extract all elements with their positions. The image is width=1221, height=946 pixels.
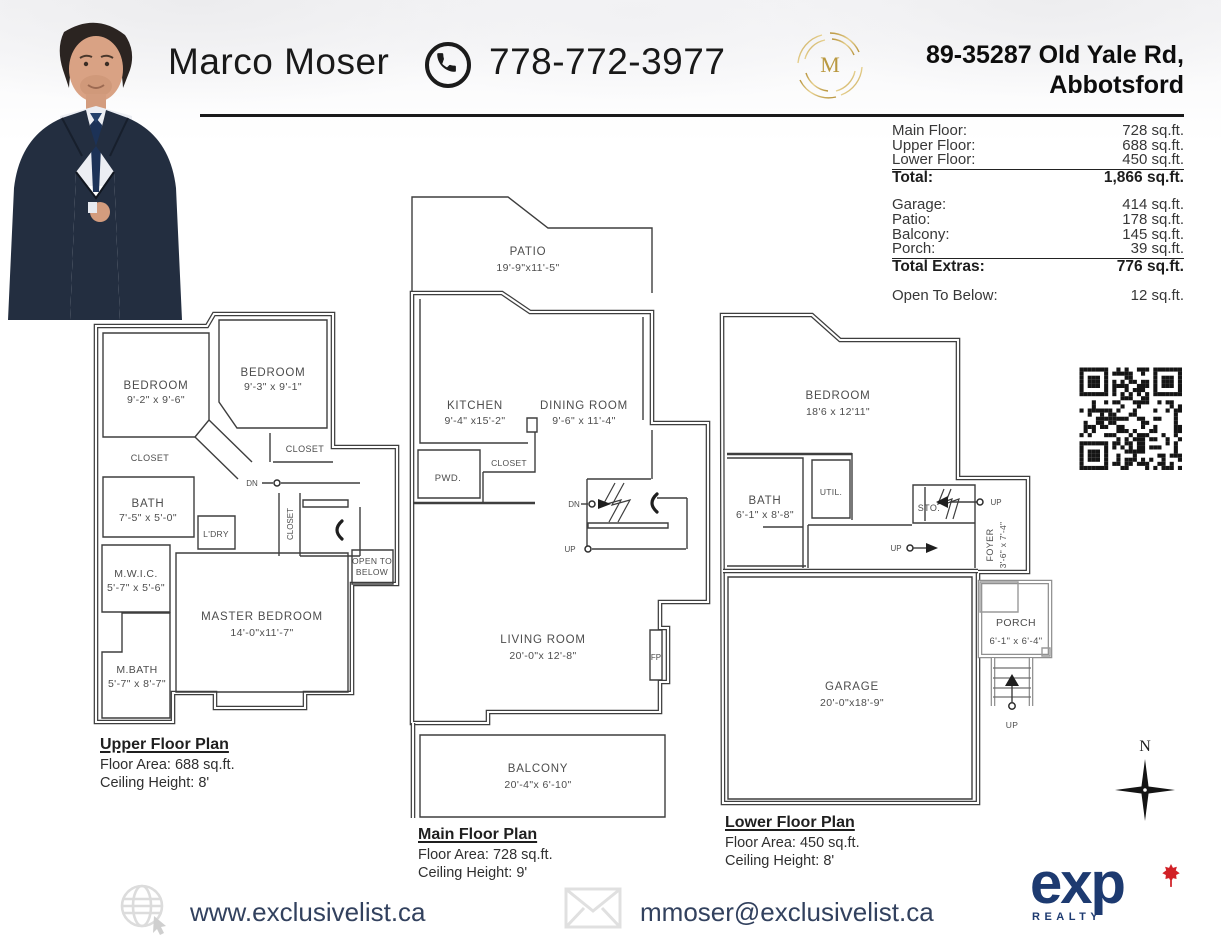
svg-text:M: M	[820, 52, 840, 77]
brokerage-logo: exp REALTY	[1022, 864, 1197, 936]
ceiling-height: Ceiling Height: 9'	[418, 864, 553, 882]
room-label: MASTER BEDROOM	[201, 611, 323, 623]
room-label: STO.	[918, 503, 940, 513]
brokerage-name: exp	[1030, 850, 1124, 917]
room-label: PORCH	[996, 617, 1036, 629]
room-dims: 20'-4"x 6'-10"	[504, 779, 571, 791]
room-dims: 9'-6" x 11'-4"	[552, 415, 616, 427]
realtor-photo	[2, 6, 188, 320]
room-label: BELOW	[356, 567, 388, 577]
room-dims: 19'-9"x11'-5"	[496, 262, 559, 274]
room-dims: 9'-3" x 9'-1"	[244, 381, 302, 393]
brokerage-subtitle: REALTY	[1032, 911, 1102, 923]
room-label: GARAGE	[825, 681, 879, 693]
maple-leaf-icon	[1160, 864, 1182, 888]
upper-plan-caption: Upper Floor Plan Floor Area: 688 sq.ft. …	[100, 736, 235, 792]
compass-rose: N	[1105, 735, 1185, 827]
stair-label: DN	[246, 479, 258, 488]
room-label: L'DRY	[203, 529, 229, 539]
table-row-total-extras: Total Extras:776 sq.ft.	[892, 260, 1184, 275]
room-dims: 6'-1" x 6'-4"	[989, 636, 1042, 647]
room-label: PWD.	[435, 473, 461, 484]
room-dims: 3'-6" x 7'-4"	[998, 522, 1008, 569]
room-label: BATH	[748, 495, 781, 507]
room-label: M.W.I.C.	[114, 568, 157, 580]
table-row: Lower Floor:450 sq.ft.	[892, 153, 1184, 168]
room-label: CLOSET	[286, 444, 325, 454]
room-label: DINING ROOM	[540, 400, 628, 412]
globe-icon	[116, 880, 172, 936]
table-row-open-to-below: Open To Below:12 sq.ft.	[892, 289, 1184, 304]
area-summary-table: Main Floor:728 sq.ft. Upper Floor:688 sq…	[892, 124, 1184, 304]
website-link[interactable]: www.exclusivelist.ca	[190, 897, 426, 928]
room-dims: 20'-0"x18'-9"	[820, 697, 884, 709]
floor-area: Floor Area: 688 sq.ft.	[100, 756, 235, 774]
room-label: OPEN TO	[352, 556, 392, 566]
room-label: PATIO	[510, 246, 547, 258]
room-label: UTIL.	[820, 487, 842, 497]
room-label: LIVING ROOM	[500, 634, 585, 646]
room-label: FOYER	[985, 528, 995, 561]
room-label: FP	[651, 653, 661, 662]
room-dims: 5'-7" x 8'-7"	[108, 678, 166, 690]
brand-logo-gold: M	[792, 27, 868, 103]
room-dims: 6'-1" x 8'-8"	[736, 509, 794, 521]
phone-number[interactable]: 778-772-3977	[489, 41, 725, 83]
stair-label: UP	[890, 544, 901, 553]
header-divider	[200, 114, 1184, 117]
stair-label: UP	[990, 498, 1001, 507]
room-dims: 18'6 x 12'11"	[806, 406, 870, 418]
room-label: M.BATH	[116, 664, 157, 676]
compass-north-label: N	[1139, 738, 1151, 755]
ceiling-height: Ceiling Height: 8'	[725, 852, 860, 870]
room-label: BEDROOM	[123, 380, 188, 392]
floor-area: Floor Area: 728 sq.ft.	[418, 846, 553, 864]
address-line-2: Abbotsford	[926, 70, 1184, 100]
qr-code	[1078, 366, 1184, 472]
room-label: BATH	[131, 498, 164, 510]
flyer-page: Marco Moser 778-772-3977 M 89-35287 Old …	[0, 0, 1221, 946]
room-dims: 20'-0"x 12'-8"	[509, 650, 576, 662]
main-plan-caption: Main Floor Plan Floor Area: 728 sq.ft. C…	[418, 826, 553, 882]
lower-plan-caption: Lower Floor Plan Floor Area: 450 sq.ft. …	[725, 814, 860, 870]
phone-icon	[423, 40, 473, 90]
room-label: CLOSET	[491, 458, 527, 468]
address-line-1: 89-35287 Old Yale Rd,	[926, 40, 1184, 70]
agent-name: Marco Moser	[168, 41, 389, 83]
room-dims: 9'-2" x 9'-6"	[127, 394, 185, 406]
stair-label: UP	[1006, 720, 1018, 730]
stair-label: UP	[564, 545, 575, 554]
room-label: CLOSET	[286, 508, 295, 540]
room-label: CLOSET	[131, 453, 170, 463]
room-label: BEDROOM	[805, 390, 870, 402]
email-icon	[563, 886, 623, 930]
table-row-total: Total:1,866 sq.ft.	[892, 171, 1184, 186]
upper-floor-plan: BEDROOM 9'-2" x 9'-6" BEDROOM 9'-3" x 9'…	[88, 306, 408, 738]
email-link[interactable]: mmoser@exclusivelist.ca	[640, 897, 934, 928]
room-dims: 7'-5" x 5'-0"	[119, 512, 177, 524]
stair-label: DN	[568, 500, 580, 509]
table-row: Porch:39 sq.ft.	[892, 242, 1184, 257]
room-dims: 14'-0"x11'-7"	[230, 627, 293, 639]
ceiling-height: Ceiling Height: 8'	[100, 774, 235, 792]
room-dims: 9'-4" x15'-2"	[444, 415, 505, 427]
main-floor-plan: DN UP PATIO 19'-9"x11'-5" KITCHEN 9'-4" …	[403, 192, 715, 824]
room-dims: 5'-7" x 5'-6"	[107, 582, 165, 594]
room-label: BALCONY	[508, 763, 569, 775]
floor-area: Floor Area: 450 sq.ft.	[725, 834, 860, 852]
lower-floor-plan: UP UP FOYER 3'-6" x 7'-4" UP BEDROOM 18'…	[713, 306, 1065, 812]
listing-address: 89-35287 Old Yale Rd, Abbotsford	[926, 40, 1184, 100]
room-label: KITCHEN	[447, 400, 503, 412]
room-label: BEDROOM	[240, 367, 305, 379]
